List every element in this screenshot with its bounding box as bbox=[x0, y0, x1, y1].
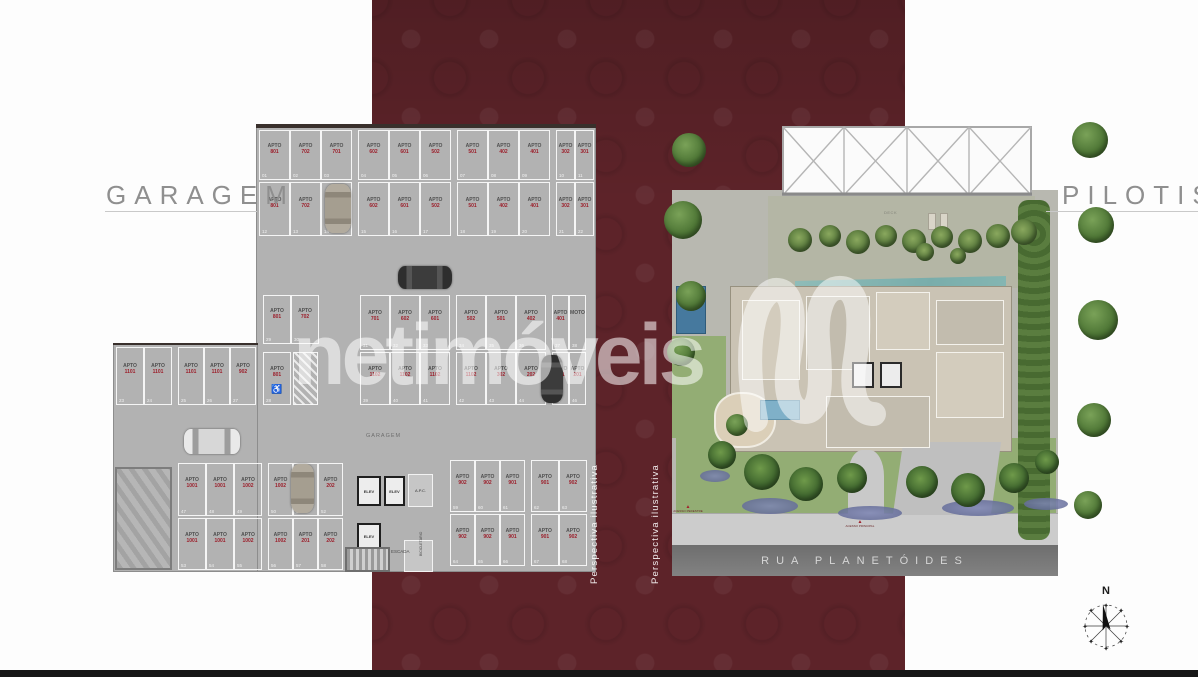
svg-text:✦: ✦ bbox=[1124, 623, 1130, 631]
garage-wing-wall bbox=[113, 343, 258, 345]
parking-stall: APTO100256 bbox=[268, 518, 293, 570]
access-caption: ACESSO PEDESTRE bbox=[668, 510, 708, 514]
parking-stall: APTO100154 bbox=[206, 518, 234, 570]
palm-icon bbox=[744, 454, 780, 490]
tree-icon bbox=[1077, 403, 1111, 437]
palm-icon bbox=[708, 441, 736, 469]
parking-stall: APTO90265 bbox=[475, 514, 500, 566]
elevator-label: ELEV bbox=[364, 489, 374, 494]
parking-stall: APTO30221 bbox=[556, 182, 575, 236]
parking-stall: APTO110125 bbox=[178, 347, 204, 405]
shrub-icon bbox=[916, 243, 934, 261]
parking-stall: APTO30122 bbox=[575, 182, 594, 236]
parking-stall: APTO100147 bbox=[178, 463, 206, 516]
parking-stall: APTO50217 bbox=[420, 182, 451, 236]
driving-car bbox=[184, 429, 240, 454]
shrub-icon bbox=[1011, 219, 1037, 245]
parking-stall: APTO90268 bbox=[559, 514, 587, 566]
parking-stall: APTO80129 bbox=[263, 295, 291, 344]
elevator-box: ELEV bbox=[357, 523, 381, 549]
palm-icon bbox=[951, 473, 985, 507]
parked-car bbox=[291, 464, 314, 513]
elevator-label: ELEV bbox=[389, 489, 399, 494]
parking-stall: APTO80128 bbox=[263, 352, 291, 405]
garage-inner-label: GARAGEM bbox=[366, 433, 401, 439]
parking-stall: APTO100249 bbox=[234, 463, 262, 516]
parking-stall: APTO90260 bbox=[475, 460, 500, 512]
pilotis-title-line bbox=[1046, 211, 1198, 212]
svg-text:✦: ✦ bbox=[1088, 607, 1094, 615]
parking-stall: APTO40109 bbox=[519, 130, 550, 180]
parking-stall: APTO60215 bbox=[358, 182, 389, 236]
palm-icon bbox=[1035, 450, 1059, 474]
shrub-icon bbox=[931, 226, 953, 248]
parking-stall: APTO90167 bbox=[531, 514, 559, 566]
elevator-box: ELEV bbox=[357, 476, 381, 506]
parking-stall: APTO30210 bbox=[556, 130, 575, 180]
compass-north-label: N bbox=[1102, 585, 1110, 597]
netimoveis-logo-icon bbox=[728, 268, 903, 438]
parking-stall: APTO20157 bbox=[293, 518, 318, 570]
pedestrian-access-marker: ▲ ACESSO PEDESTRE bbox=[668, 505, 708, 514]
parked-car bbox=[325, 184, 351, 233]
apc-label: A.P.C. bbox=[415, 488, 426, 493]
parking-stall: APTO100153 bbox=[178, 518, 206, 570]
parking-stall: APTO60116 bbox=[389, 182, 420, 236]
groundcover-patch bbox=[700, 470, 730, 482]
shrub-icon bbox=[819, 225, 841, 247]
svg-text:✦: ✦ bbox=[1118, 607, 1124, 615]
garage-ramp bbox=[115, 467, 172, 570]
parking-stall: APTO90227 bbox=[230, 347, 256, 405]
parking-stall: APTO80101 bbox=[259, 130, 290, 180]
tree-icon bbox=[1078, 300, 1118, 340]
svg-text:✦: ✦ bbox=[1082, 623, 1088, 631]
tree-icon bbox=[664, 201, 702, 239]
access-caption: ACESSO PRINCIPAL bbox=[840, 525, 880, 529]
shrub-icon bbox=[788, 228, 812, 252]
deck-label: DECK bbox=[884, 210, 897, 215]
parking-stall: APTO70103 bbox=[321, 130, 352, 180]
parking-stall: APTO100250 bbox=[268, 463, 293, 516]
parking-stall: APTO20258 bbox=[318, 518, 343, 570]
shrub-icon bbox=[875, 225, 897, 247]
svg-text:✦: ✦ bbox=[1103, 645, 1109, 653]
pilotis-title: PILOTIS bbox=[1062, 180, 1198, 211]
palm-icon bbox=[837, 463, 867, 493]
bottom-black-bar bbox=[0, 670, 1198, 677]
stairs-label: ESCADA bbox=[391, 549, 410, 554]
parking-stall: APTO90264 bbox=[450, 514, 475, 566]
parking-stall: APTO100255 bbox=[234, 518, 262, 570]
apc-room: A.P.C. bbox=[408, 474, 433, 507]
parking-stall: APTO110124 bbox=[144, 347, 172, 405]
parking-stall: APTO90259 bbox=[450, 460, 475, 512]
room bbox=[936, 300, 1004, 345]
palm-icon bbox=[789, 467, 823, 501]
parking-stall: APTO110126 bbox=[204, 347, 230, 405]
shrub-icon bbox=[846, 230, 870, 254]
palm-icon bbox=[999, 463, 1029, 493]
groundcover-patch bbox=[742, 498, 798, 514]
parking-stall: APTO20252 bbox=[318, 463, 343, 516]
parking-stall: APTO60105 bbox=[389, 130, 420, 180]
parking-stall: APTO40120 bbox=[519, 182, 550, 236]
stairs bbox=[345, 547, 390, 572]
parking-stall: APTO50206 bbox=[420, 130, 451, 180]
parking-stall: APTO30111 bbox=[575, 130, 594, 180]
parking-stall: APTO90161 bbox=[500, 460, 525, 512]
parking-stall: APTO50118 bbox=[457, 182, 488, 236]
parking-stall: APTO100148 bbox=[206, 463, 234, 516]
perspectiva-caption: Perspectiva ilustrativa bbox=[589, 452, 600, 584]
elevator-label: ELEV bbox=[364, 534, 374, 539]
main-access-marker: ▲ ACESSO PRINCIPAL bbox=[840, 520, 880, 529]
shrub-icon bbox=[950, 248, 966, 264]
palm-icon bbox=[906, 466, 938, 498]
netimoveis-watermark: netimóveis bbox=[293, 306, 702, 405]
driving-car bbox=[398, 266, 452, 289]
parking-stall: APTO90162 bbox=[531, 460, 559, 512]
parking-stall: APTO90263 bbox=[559, 460, 587, 512]
parking-stall: APTO110123 bbox=[116, 347, 144, 405]
garage-title: GARAGEM bbox=[106, 180, 295, 211]
room bbox=[936, 352, 1004, 418]
parking-stall: APTO70202 bbox=[290, 130, 321, 180]
perspectiva-caption: Perspectiva ilustrativa bbox=[650, 452, 661, 584]
svg-text:✦: ✦ bbox=[1088, 638, 1094, 646]
svg-text:✦: ✦ bbox=[1118, 638, 1124, 646]
shrub-icon bbox=[986, 224, 1010, 248]
parking-stall: APTO40219 bbox=[488, 182, 519, 236]
tree-icon bbox=[672, 133, 706, 167]
tree-icon bbox=[1072, 122, 1108, 158]
elevator-box: ELEV bbox=[384, 476, 405, 506]
parking-stall: APTO60204 bbox=[358, 130, 389, 180]
parking-stall: APTO50107 bbox=[457, 130, 488, 180]
brochure-page: APTO80101APTO70202APTO70103APTO60204APTO… bbox=[0, 0, 1198, 677]
groundcover-patch bbox=[838, 506, 902, 520]
parking-stall: APTO90166 bbox=[500, 514, 525, 566]
tree-icon bbox=[1074, 491, 1102, 519]
garage-title-line bbox=[105, 211, 257, 212]
pergola-trellis bbox=[782, 126, 1032, 196]
street-name: RUA PLANETÓIDES bbox=[761, 555, 969, 567]
wheelchair-icon: ♿ bbox=[271, 384, 282, 395]
parking-stall: APTO40208 bbox=[488, 130, 519, 180]
garage-top-wall bbox=[256, 124, 596, 128]
compass-icon: N ✦✦ ✦✦ ✦✦ ✦✦ bbox=[1074, 582, 1138, 656]
groundcover-patch bbox=[1024, 498, 1068, 510]
street-band: RUA PLANETÓIDES bbox=[672, 545, 1058, 576]
bike-room-label: BICICLETÁRIO bbox=[419, 516, 423, 556]
tree-icon bbox=[1078, 207, 1114, 243]
